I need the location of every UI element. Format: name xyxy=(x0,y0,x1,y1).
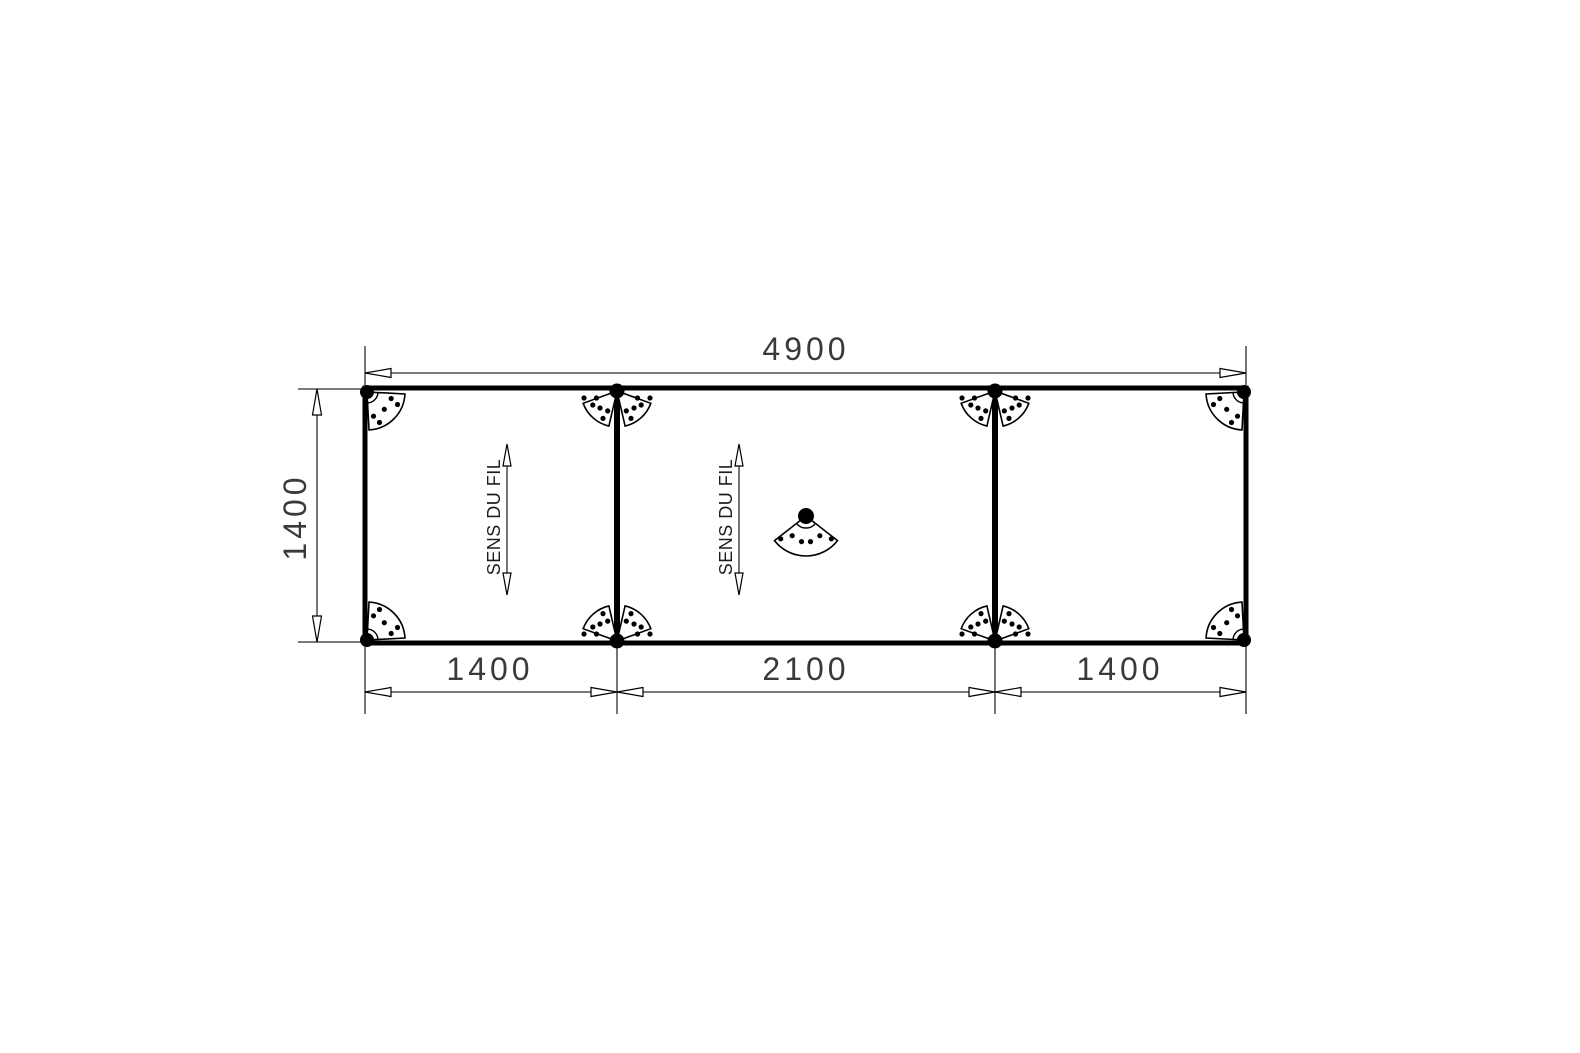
grain-label-1: SENS DU FIL xyxy=(484,459,504,576)
dim-section-2-label: 2100 xyxy=(762,651,849,687)
arrowhead-left xyxy=(365,369,391,378)
technical-drawing: 4900 1400 1400 2100 1400 SENS D xyxy=(0,0,1580,1053)
arrowhead-left xyxy=(617,688,643,697)
arrowhead-down xyxy=(735,573,743,595)
dim-section-3-label: 1400 xyxy=(1076,651,1163,687)
grain-direction-1: SENS DU FIL xyxy=(484,444,511,595)
arrowhead-up xyxy=(735,444,743,466)
grain-direction-2: SENS DU FIL xyxy=(716,444,743,595)
arrowhead-right xyxy=(1220,369,1246,378)
arrowhead-left xyxy=(995,688,1021,697)
dim-sections: 1400 2100 1400 xyxy=(365,651,1246,697)
grain-label-2: SENS DU FIL xyxy=(716,459,736,576)
arrowhead-right xyxy=(591,688,617,697)
arrowhead-up xyxy=(503,444,511,466)
dim-section-1-label: 1400 xyxy=(446,651,533,687)
drawing-canvas: 4900 1400 1400 2100 1400 SENS D xyxy=(0,0,1580,1053)
center-bracket xyxy=(774,508,837,556)
arrowhead-down xyxy=(503,573,511,595)
arrowhead-up xyxy=(313,389,322,415)
arrowhead-right xyxy=(969,688,995,697)
dim-overall-width-label: 4900 xyxy=(762,331,849,367)
dim-overall-height: 1400 xyxy=(277,389,322,642)
arrowhead-right xyxy=(1220,688,1246,697)
dim-overall-height-label: 1400 xyxy=(277,473,313,560)
arrowhead-down xyxy=(313,616,322,642)
dim-overall-width: 4900 xyxy=(365,331,1246,378)
arrowhead-left xyxy=(365,688,391,697)
